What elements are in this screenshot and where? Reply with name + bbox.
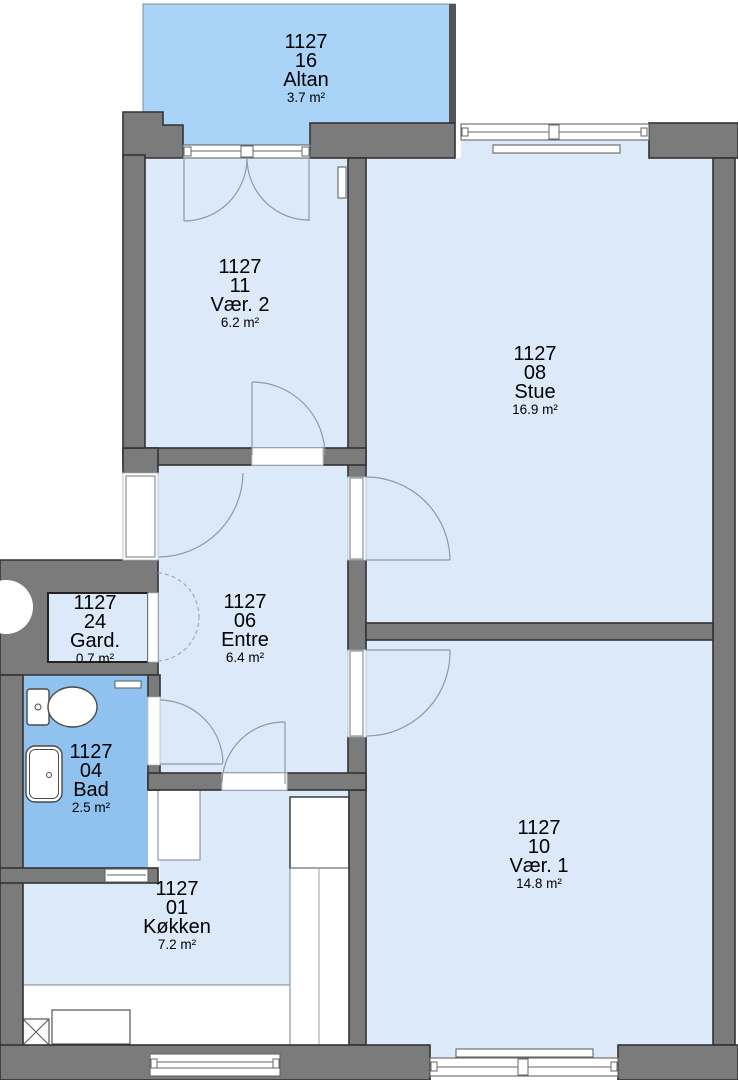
stue-door-slab <box>350 478 363 559</box>
radiator-stue <box>493 145 620 153</box>
kitchen-tall-cabinets <box>290 797 349 1045</box>
sink-icon <box>26 746 62 802</box>
vaer2-door-opening <box>252 448 323 465</box>
room-name: Bad <box>69 781 112 800</box>
toilet-icon <box>27 687 97 727</box>
wall-vaer2-entre <box>123 448 366 465</box>
bad-door-opening <box>148 697 160 765</box>
wall-frontdoor-step <box>123 448 158 473</box>
window-vaer1 <box>430 1058 618 1076</box>
kitchen-cabinet-upper-left <box>158 790 200 860</box>
room-area: 14.8 m² <box>510 876 569 892</box>
floor-plan: 1127 16 Altan 3.7 m² 1127 11 Vær. 2 6.2 … <box>0 0 738 1080</box>
wall-vaer2-left <box>123 155 145 448</box>
room-name: Altan <box>283 71 329 90</box>
wall-bottom-right <box>618 1045 738 1080</box>
room-area: 0.7 m² <box>70 651 120 667</box>
room-label-gard: 1127 24 Gard. 0.7 m² <box>70 594 120 667</box>
room-label-vaer1: 1127 10 Vær. 1 14.8 m² <box>510 819 569 892</box>
room-area: 6.2 m² <box>211 315 270 331</box>
radiator-vaer1 <box>456 1049 593 1057</box>
gard-door-band <box>148 593 158 662</box>
room-label-vaer2: 1127 11 Vær. 2 6.2 m² <box>211 258 270 331</box>
wall-top-right <box>649 123 738 158</box>
room-area: 3.7 m² <box>283 90 329 106</box>
wall-entre-mid <box>348 560 366 650</box>
room-name: Køkken <box>143 918 211 937</box>
room-label-stue: 1127 08 Stue 16.9 m² <box>512 345 558 418</box>
room-area: 6.4 m² <box>221 650 269 666</box>
wall-vaer2-stue <box>348 158 366 477</box>
room-name: Stue <box>512 383 558 402</box>
room-area: 7.2 m² <box>143 937 211 953</box>
kitchen-appliance-icon <box>23 1019 49 1045</box>
room-label-bad: 1127 04 Bad 2.5 m² <box>69 743 112 816</box>
wall-koekken-vaer1 <box>349 790 366 1045</box>
room-name: Gard. <box>70 632 120 651</box>
balcony-door-frame <box>183 145 310 158</box>
bath-vent <box>105 869 148 882</box>
kitchen-counter-unit <box>52 1010 130 1044</box>
room-name: Vær. 1 <box>510 857 569 876</box>
bath-shelf <box>115 681 141 688</box>
window-stue <box>461 124 649 140</box>
floor-plan-drawing <box>0 0 738 1080</box>
room-label-entre: 1127 06 Entre 6.4 m² <box>221 593 269 666</box>
front-door-slab <box>126 476 155 557</box>
room-name: Vær. 2 <box>211 296 270 315</box>
room-name: Entre <box>221 631 269 650</box>
window-koekken <box>150 1054 280 1076</box>
room-label-koekken: 1127 01 Køkken 7.2 m² <box>143 880 211 953</box>
room-area: 16.9 m² <box>512 402 558 418</box>
wall-bad-right-upper <box>148 675 160 697</box>
radiator-vaer2 <box>338 167 346 198</box>
koekken-door-opening <box>222 773 287 790</box>
room-label-altan: 1127 16 Altan 3.7 m² <box>283 33 329 106</box>
balcony-railing-edge <box>449 4 456 123</box>
wall-right <box>713 158 735 1045</box>
wall-top-mid <box>310 123 455 158</box>
room-area: 2.5 m² <box>69 800 112 816</box>
wall-stue-vaer1 <box>366 623 713 640</box>
vaer1-door-slab <box>350 651 363 736</box>
